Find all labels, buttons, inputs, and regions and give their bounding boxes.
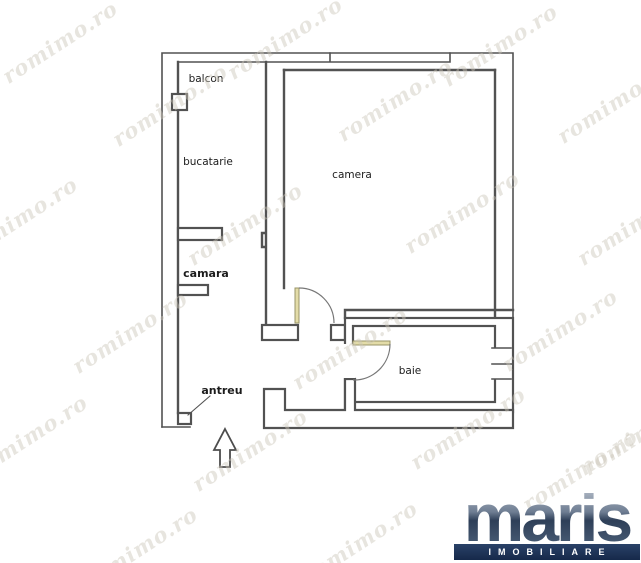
- balcon-divider-stub: [172, 94, 187, 110]
- floor-plan: balcon bucatarie camera camara antreu ba…: [0, 0, 641, 563]
- room-label-balcon: balcon: [189, 73, 224, 85]
- baie-door-leaf: [353, 341, 390, 345]
- camara-bottom-wall: [178, 285, 208, 295]
- camara-top-wall: [178, 228, 222, 240]
- logo-brand-text: maris: [454, 493, 640, 543]
- antreu-pointer-line: [188, 396, 210, 415]
- floorplan-page: balcon bucatarie camera camara antreu ba…: [0, 0, 641, 563]
- strip-right-wall: [262, 62, 266, 325]
- room-label-camara: camara: [183, 267, 229, 280]
- room-label-bucatarie: bucatarie: [183, 156, 233, 168]
- baie-inner-wall: [353, 326, 495, 402]
- camera-door-leaf: [295, 288, 299, 323]
- entrance-arrow-icon: [214, 429, 236, 467]
- baie-door-gap: [342, 344, 355, 378]
- camera-bottom-wall: [345, 310, 513, 318]
- room-label-camera: camera: [332, 169, 372, 181]
- logo-tagline-text: IMOBILIARE: [489, 547, 612, 557]
- camera-door-jamb: [331, 325, 345, 340]
- room-label-antreu: antreu: [201, 384, 242, 397]
- top-window-line: [178, 53, 450, 62]
- room-label-baie: baie: [399, 365, 421, 377]
- camera-door-arc: [299, 288, 334, 323]
- central-wall-foot: [262, 325, 298, 340]
- maris-logo: maris IMOBILIARE: [454, 493, 640, 560]
